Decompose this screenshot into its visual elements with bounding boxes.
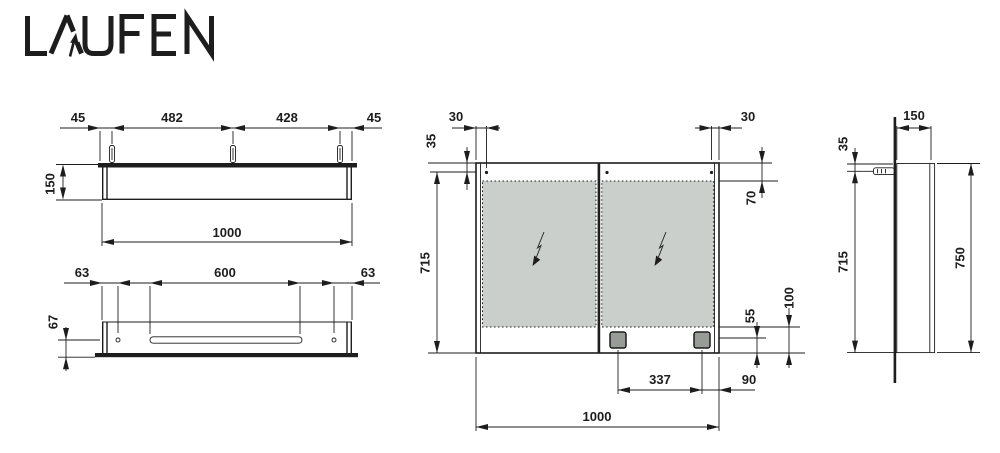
front-hinge-inset-left-dimension: 30 (449, 109, 500, 168)
front-view: 30 30 35 70 (418, 109, 806, 431)
shaver-socket-left (610, 332, 626, 348)
dim-edge-to-hole-left: 63 (75, 265, 89, 280)
dim-top-to-anchor: 35 (836, 137, 851, 151)
hinge-dot-left (485, 171, 488, 174)
dim-slot-inset: 67 (46, 315, 61, 329)
front-hinge-inset-right-dimension: 30 (695, 109, 755, 160)
bottom-view-slot-inset-dimension: 67 (46, 315, 101, 371)
dim-clip-spacing-1: 482 (161, 110, 183, 125)
dim-socket-to-edge: 90 (742, 372, 756, 387)
side-left-dimensions: 35 715 (836, 137, 897, 353)
dim-top-to-glass: 70 (744, 191, 759, 205)
side-overall-height-dimension: 750 (937, 164, 980, 353)
dim-front-overall-width: 1000 (583, 409, 612, 424)
dimension-drawing: LAUFEN 45 482 (0, 0, 1000, 453)
front-socket-to-bottom-dimension: 55 (719, 309, 805, 368)
door-divider (598, 163, 601, 353)
top-view-front-plate (98, 163, 357, 168)
light-slot (150, 337, 302, 343)
dim-edge-to-clip-right: 45 (367, 110, 381, 125)
wall-anchor-screw-icon (874, 168, 895, 175)
dim-top-depth: 150 (43, 173, 58, 195)
logo-letter-l (28, 16, 48, 54)
dim-overall-height: 750 (953, 247, 968, 269)
top-view-body (102, 168, 352, 200)
technical-drawing-page: LAUFEN 45 482 (0, 0, 1000, 453)
side-view-body (897, 164, 935, 353)
bottom-view-chain-dimension: 63 600 63 (64, 265, 380, 334)
dim-edge-to-clip-left: 45 (71, 110, 85, 125)
dim-front-body-height: 715 (418, 252, 433, 274)
dim-clip-spacing-2: 428 (276, 110, 298, 125)
front-body-height-dimension: 715 (418, 172, 477, 353)
logo-letter-n (187, 16, 212, 54)
bottom-view: 63 600 63 67 (46, 265, 381, 371)
dim-hinge-inset-left: 30 (449, 109, 463, 124)
top-view: 45 482 428 45 (43, 110, 383, 246)
top-view-overall-width-dimension: 1000 (102, 203, 352, 246)
hinge-dot-middle (605, 171, 608, 174)
front-overall-width-dimension: 1000 (476, 357, 719, 431)
mirror-glass-right (602, 181, 714, 327)
fixing-hole-left (116, 338, 120, 342)
mirror-glass-left (483, 181, 597, 327)
dim-top-overall-width: 1000 (213, 225, 242, 240)
hinge-dot-right (710, 171, 713, 174)
bottom-view-body (95, 322, 358, 357)
dim-side-body-height: 715 (836, 251, 851, 273)
logo-letter-f (122, 17, 144, 54)
front-top-to-glass-dimension: 70 (719, 147, 778, 205)
brand-logo: LAUFEN (28, 16, 212, 57)
dim-edge-to-hole-right: 63 (361, 265, 375, 280)
dim-top-to-hinge: 35 (424, 134, 439, 148)
dim-hinge-inset-right: 30 (741, 109, 755, 124)
front-top-to-hinge-dimension: 35 (424, 134, 477, 190)
bottom-view-front-plate (95, 353, 358, 357)
logo-letter-u (85, 16, 111, 54)
dim-socket-to-bottom: 55 (743, 309, 758, 323)
front-socket-spacing-dimension: 337 90 (618, 350, 756, 394)
dim-glass-to-bottom: 100 (782, 287, 797, 309)
wall-line (894, 117, 897, 383)
front-view-cabinet (476, 163, 719, 353)
fixing-hole-right (332, 338, 336, 342)
side-view: 150 35 715 750 (836, 108, 981, 383)
logo-letter-a-arrow-icon (51, 16, 82, 57)
mounting-clip-icon (110, 146, 343, 163)
side-depth-dimension: 150 (897, 108, 931, 160)
shaver-socket-right (694, 332, 710, 348)
dim-socket-spacing: 337 (649, 372, 671, 387)
top-view-width-chain-dimension: 45 482 428 45 (60, 110, 382, 161)
logo-letter-e (154, 17, 176, 54)
dim-side-depth: 150 (903, 108, 925, 123)
dim-slot-length: 600 (214, 265, 236, 280)
top-view-depth-dimension: 150 (43, 165, 103, 201)
